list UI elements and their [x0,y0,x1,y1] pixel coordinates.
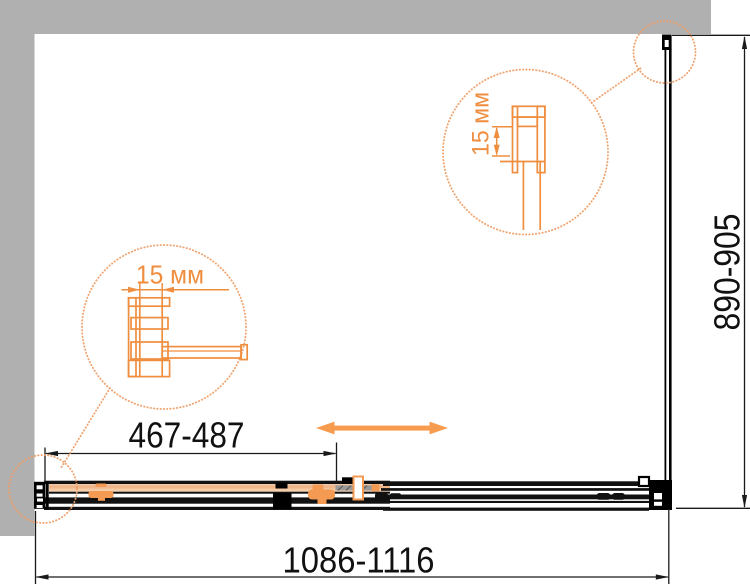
svg-text:15 мм: 15 мм [136,260,204,290]
svg-text:15 мм: 15 мм [468,92,495,156]
svg-text:1086-1116: 1086-1116 [283,539,435,580]
svg-text:890-905: 890-905 [707,214,748,331]
svg-text:467-487: 467-487 [129,414,245,455]
